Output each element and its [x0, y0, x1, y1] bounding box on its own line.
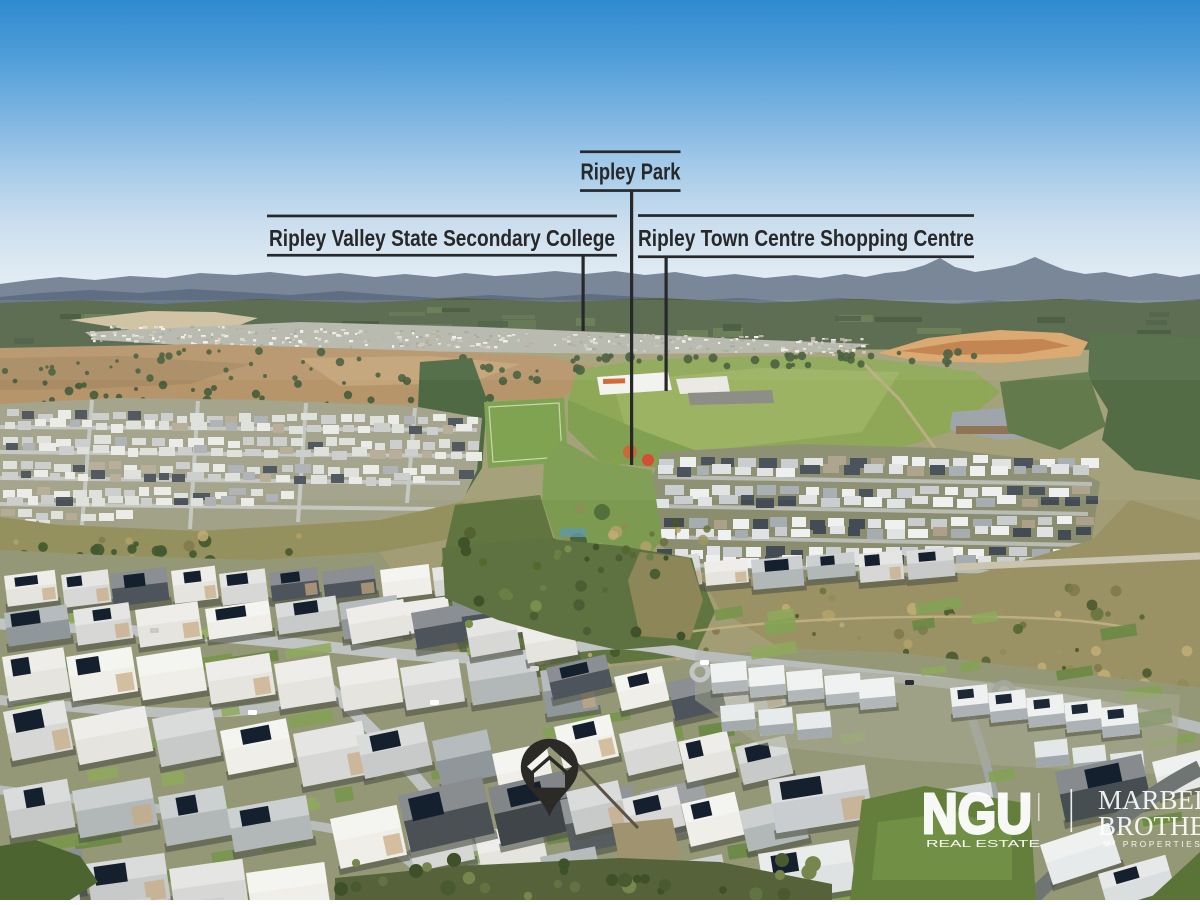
svg-text:M² PROPERTIES: M² PROPERTIES [1103, 839, 1200, 849]
svg-text:REAL ESTATE: REAL ESTATE [926, 838, 1040, 850]
svg-text:Ripley Valley State Secondary: Ripley Valley State Secondary College [269, 225, 615, 251]
svg-text:Ripley Park: Ripley Park [581, 159, 682, 185]
svg-text:BROTHERS: BROTHERS [1098, 811, 1200, 841]
svg-text:Ripley Town Centre Shopping Ce: Ripley Town Centre Shopping Centre [638, 225, 974, 251]
svg-text:NGU: NGU [922, 782, 1032, 846]
